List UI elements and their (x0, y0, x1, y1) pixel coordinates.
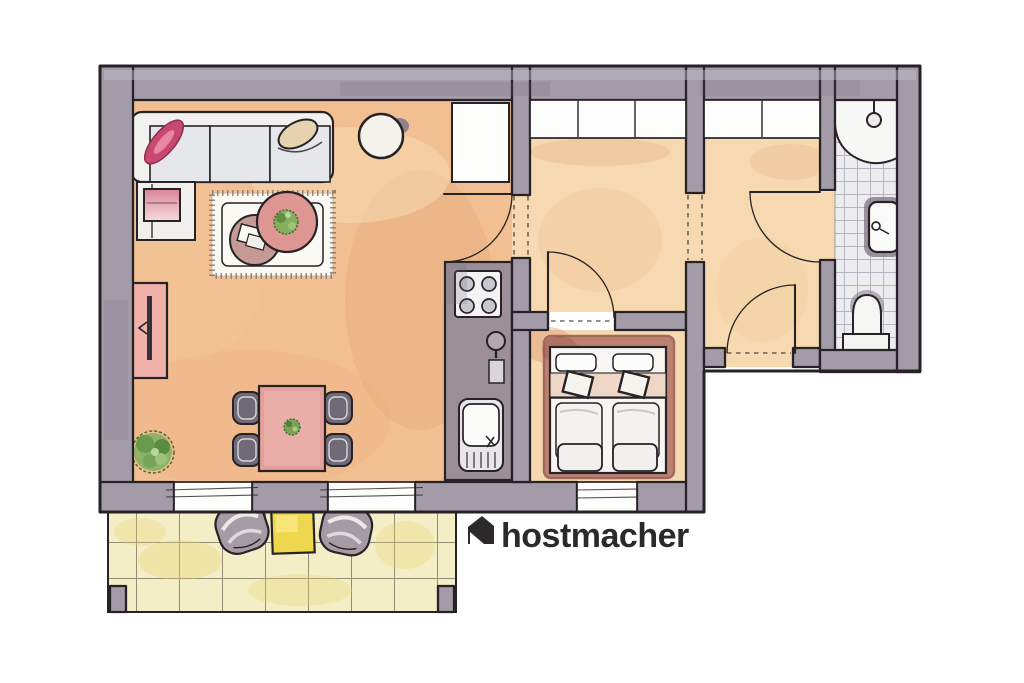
terrace-wall-stub-left (110, 586, 126, 612)
logo-text: hostmacher (501, 517, 689, 555)
wall-hall-bedroom-right (615, 312, 686, 330)
hall-entry-opening-floor (686, 194, 704, 262)
terrace-sliding-door-left (166, 482, 258, 512)
kitchen-sink (459, 399, 503, 471)
tv-sideboard (132, 283, 167, 378)
sink-basin (463, 404, 499, 446)
basin-faucet (872, 222, 880, 230)
terrace (108, 497, 456, 612)
burner (460, 277, 474, 291)
wall-left (100, 66, 133, 512)
wall-bottom-living-a (100, 482, 174, 512)
toilet-tank (843, 334, 889, 351)
foot-cushion (613, 444, 657, 471)
foot-cushion (558, 444, 602, 471)
dining-table-plant (284, 419, 300, 435)
sofa-seat (210, 126, 270, 182)
wall-right (897, 66, 920, 372)
headboard-cushion (619, 371, 649, 398)
entry-window (704, 100, 820, 138)
coffee-table-large (257, 192, 317, 252)
pillow (613, 354, 653, 371)
ottoman (144, 189, 180, 221)
cutting-board (489, 360, 504, 383)
house-icon (468, 516, 494, 544)
wall-hall-entry-upper (686, 66, 704, 193)
kitchenette (445, 262, 512, 480)
wall-living-hall-lower (512, 258, 530, 482)
shower-head (867, 113, 881, 127)
tv (147, 296, 152, 360)
front-door-threshold-floor (725, 348, 793, 367)
bathroom-door-opening-floor (820, 192, 835, 260)
living-hall-opening-floor (512, 196, 530, 258)
headboard-cushion (563, 371, 593, 398)
toilet-bowl (853, 295, 881, 335)
burner (460, 299, 474, 313)
double-bed (550, 347, 666, 473)
table-plant (274, 210, 298, 234)
wall-hall-bedroom-left (512, 312, 548, 330)
burner (482, 299, 496, 313)
hall-floor (530, 138, 686, 312)
wall-entry-bottom-left (704, 348, 725, 367)
logo: hostmacher (468, 516, 689, 555)
burner (482, 277, 496, 291)
wall-entry-bottom-right (793, 348, 820, 367)
wall-entry-bath-upper (820, 66, 835, 190)
terrace-wall-stub-right (438, 586, 454, 612)
floor-plan-page: hostmacher (0, 0, 1024, 683)
pillow (556, 354, 596, 371)
bedroom-window (577, 482, 637, 512)
floor-plan-drawing: hostmacher (0, 0, 1024, 683)
bedroom (542, 336, 674, 478)
stove (455, 271, 501, 317)
terrace-side-table (271, 510, 314, 553)
wall-top (100, 66, 920, 100)
entry-floor (704, 138, 820, 348)
hall-window (530, 100, 686, 138)
wall-bottom-living-b (252, 482, 328, 512)
terrace-sliding-door-right (320, 482, 423, 512)
wall-living-hall-upper (512, 66, 530, 195)
wall-bedroom-right (686, 262, 704, 512)
wall-bottom-living-c (415, 482, 577, 512)
tall-cabinet (452, 103, 509, 182)
